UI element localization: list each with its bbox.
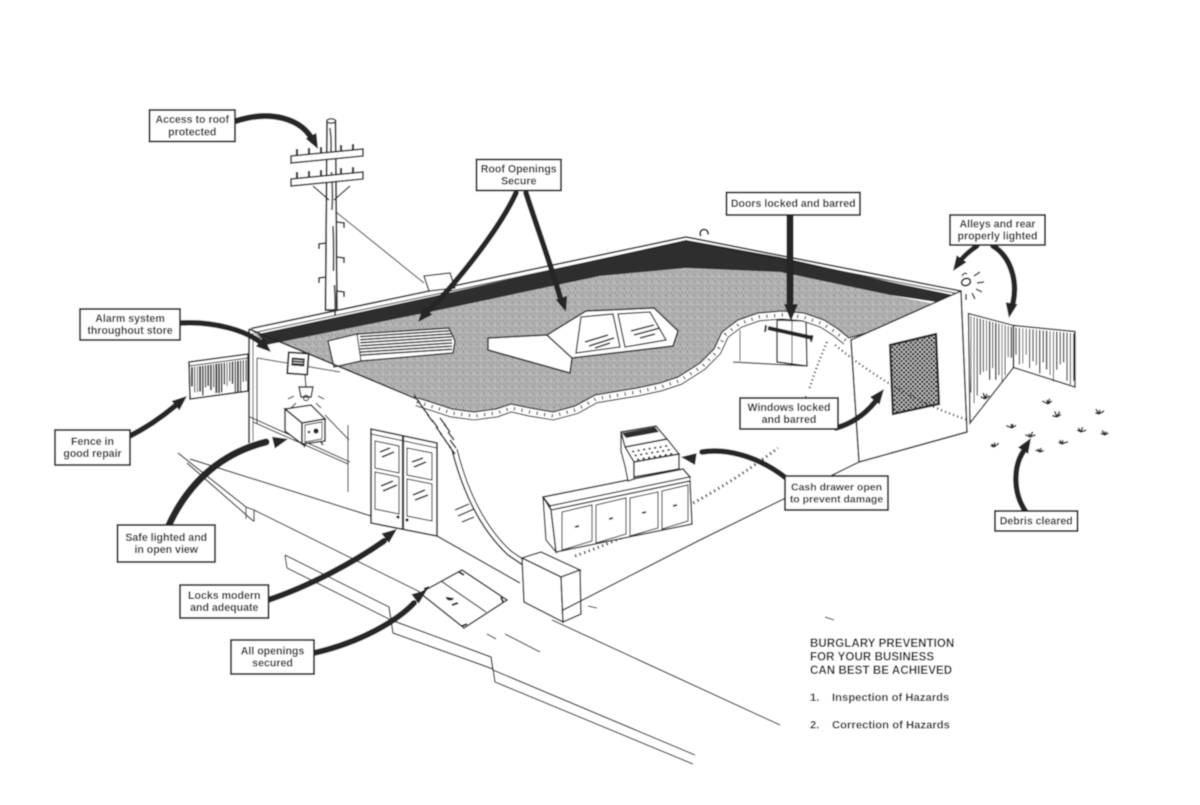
svg-text:FOR YOUR BUSINESS: FOR YOUR BUSINESS [810,652,934,664]
svg-text:and adequate: and adequate [190,602,258,614]
svg-text:CAN BEST BE ACHIEVED: CAN BEST BE ACHIEVED [810,665,952,677]
svg-text:Roof Openings: Roof Openings [481,163,557,175]
svg-text:Inspection of Hazards: Inspection of Hazards [832,692,949,704]
svg-text:to prevent damage: to prevent damage [790,494,884,506]
svg-text:Doors locked and barred: Doors locked and barred [731,198,856,210]
svg-text:All openings: All openings [241,645,305,657]
svg-text:protected: protected [168,126,216,138]
svg-text:Locks modern: Locks modern [188,590,260,602]
svg-text:Correction of Hazards: Correction of Hazards [832,720,950,732]
svg-text:Alarm system: Alarm system [95,313,165,325]
svg-text:Cash drawer open: Cash drawer open [791,481,882,493]
svg-text:throughout store: throughout store [87,325,172,337]
svg-text:Debris cleared: Debris cleared [1000,515,1073,527]
svg-text:Alleys and rear: Alleys and rear [960,218,1036,230]
svg-text:Fence in: Fence in [71,436,114,448]
svg-text:2.: 2. [810,720,819,732]
svg-text:1.: 1. [810,692,819,704]
svg-text:in open view: in open view [134,544,198,556]
svg-text:BURGLARY PREVENTION: BURGLARY PREVENTION [810,638,954,650]
svg-text:Safe lighted and: Safe lighted and [125,532,207,544]
svg-text:Windows locked: Windows locked [748,402,831,414]
svg-text:properly lighted: properly lighted [957,231,1037,243]
svg-text:secured: secured [252,658,293,670]
svg-text:and barred: and barred [762,414,817,426]
svg-text:good repair: good repair [63,448,121,460]
svg-text:Secure: Secure [501,176,536,188]
svg-text:Access to roof: Access to roof [155,114,229,126]
